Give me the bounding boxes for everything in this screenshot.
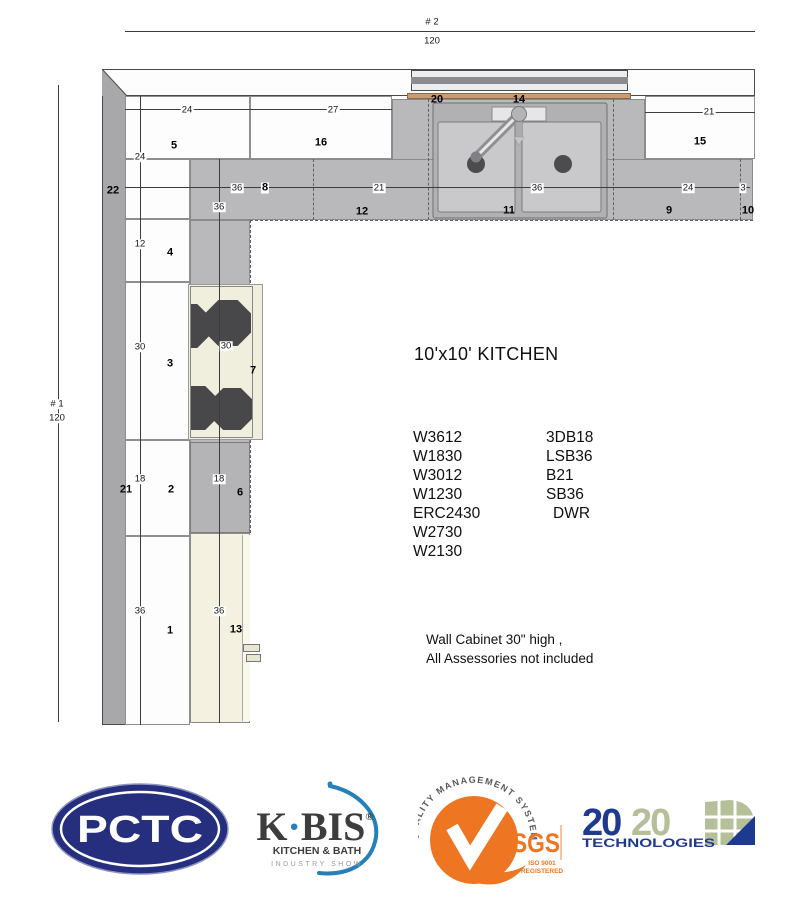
dim-label: 36 [213, 606, 226, 616]
note-line-1: Wall Cabinet 30" high , [426, 630, 593, 649]
cabinet-code: W1230 [413, 485, 480, 504]
overall-height-dim-id: # 1 [48, 399, 65, 409]
cabinet-boundary-dashed-1 [313, 159, 314, 220]
wall-cabinet-5-side [125, 159, 190, 219]
cabinet-list-col2: 3DB18LSB36B21SB36DWR [546, 428, 593, 523]
kbis-tagline: INDUSTRY SHOW [271, 861, 363, 868]
dim-label: 36 [531, 183, 544, 193]
pctc-logo: PCTC [50, 783, 230, 875]
kbis-logo: K·BIS® KITCHEN & BATH INDUSTRY SHOW [255, 775, 403, 885]
page-title: 10'x10' KITCHEN [414, 344, 558, 365]
base-left-dim-line [219, 159, 220, 723]
dim-label: 21 [703, 107, 716, 117]
cabinet-code: W1830 [413, 447, 480, 466]
dim-label: 24 [134, 152, 147, 162]
sgs-name: SGS [512, 828, 560, 858]
dim-label: 36 [231, 183, 244, 193]
dim-label: 30 [220, 341, 233, 351]
cabinet-boundary-dashed-3 [613, 99, 614, 220]
pctc-logo-text: PCTC [77, 809, 203, 851]
range-cooktop [190, 286, 253, 438]
wall-cabinet-3 [125, 282, 190, 440]
kitchen-plan-page: # 2 120 # 1 120 [0, 0, 800, 914]
cabinet-code: W3012 [413, 466, 480, 485]
overall-width-dim-line [125, 31, 755, 32]
sgs-registered: REGISTERED [521, 868, 564, 875]
item-number: 5 [171, 141, 177, 152]
2020-technologies-logo: 20 20 TECHNOLOGIES [580, 790, 758, 852]
cabinet-code: W2730 [413, 523, 480, 542]
item-number: 1 [167, 626, 173, 637]
item-number: 21 [120, 485, 132, 496]
item-number: 9 [666, 206, 672, 217]
dim-label: 24 [181, 105, 194, 115]
dim-label: 18 [134, 474, 147, 484]
cabinet-list-col1: W3612W1830W3012W1230ERC2430W2730W2130 [413, 428, 480, 561]
cabinet-code: 3DB18 [546, 428, 593, 447]
item-number: 12 [356, 207, 368, 218]
wallcab-top-dim-line [125, 109, 392, 110]
cabinet-code: LSB36 [546, 447, 593, 466]
note-text: Wall Cabinet 30" high , All Assessories … [426, 630, 593, 668]
item-number: 15 [694, 137, 706, 148]
item-number: 11 [503, 206, 515, 217]
item-number: 13 [230, 625, 242, 636]
item-number: 22 [107, 186, 119, 197]
burner-icon [205, 300, 251, 346]
overall-width-dim-value: 120 [422, 36, 442, 46]
dim-label: 36 [134, 606, 147, 616]
wallcab-left-dim-line [140, 96, 141, 725]
item-number: 2 [168, 485, 174, 496]
cabinet-code: B21 [546, 466, 593, 485]
wall-cabinet-2 [125, 440, 190, 536]
dim-label: 12 [134, 239, 147, 249]
item-number: 7 [250, 366, 256, 377]
cabinet-code: SB36 [546, 485, 593, 504]
refrigerator-door-edge [242, 535, 250, 721]
drain-icon [554, 155, 572, 173]
kbis-logo-text: K·BIS® [256, 804, 373, 849]
item-number: 3 [167, 359, 173, 370]
cabinet-code: W2130 [413, 542, 480, 561]
item-number: 10 [742, 206, 754, 217]
wall-cabinet-4 [125, 219, 190, 282]
2020-name: TECHNOLOGIES [582, 836, 715, 850]
sink-icon [430, 100, 610, 222]
wall-cabinet-15 [645, 96, 755, 159]
fridge-handle-icon [243, 644, 260, 652]
item-number: 16 [315, 138, 327, 149]
item-number: 20 [431, 95, 443, 106]
cabinet-code: ERC2430 [413, 504, 480, 523]
dim-label: 21 [373, 183, 386, 193]
dim-label: 30 [134, 342, 147, 352]
dim-label: 3 [739, 183, 746, 193]
cabinet-code: W3612 [413, 428, 480, 447]
overall-width-dim-id: # 2 [423, 17, 440, 27]
fridge-handle-icon [246, 654, 261, 662]
dim-label: 27 [327, 105, 340, 115]
cabinet-boundary-dashed-2 [428, 99, 429, 220]
wallcab15-dim-line [645, 112, 755, 113]
dim-label: 18 [213, 474, 226, 484]
dim-label: 24 [682, 183, 695, 193]
wall-cabinet-16 [250, 96, 392, 159]
wall-corner-miter [102, 69, 128, 97]
note-line-2: All Assessories not included [426, 649, 593, 668]
sgs-logo: QUALITY MANAGEMENT SYSTEM SGS ISO 9001 R… [418, 763, 578, 913]
cabinet-code: DWR [546, 504, 593, 523]
faucet-base [512, 107, 527, 122]
item-number: 8 [261, 183, 269, 194]
wall-cabinet-1 [125, 536, 190, 725]
item-number: 4 [167, 248, 173, 259]
item-number: 14 [513, 95, 525, 106]
dim-label: 36 [213, 202, 226, 212]
kbis-subtitle: KITCHEN & BATH [273, 845, 361, 857]
item-number: 6 [237, 488, 243, 499]
window-glass-band [411, 77, 628, 84]
sgs-iso: ISO 9001 [528, 860, 556, 867]
overall-height-dim-value: 120 [47, 413, 67, 423]
left-wall [102, 69, 127, 725]
burner-icon [211, 388, 253, 430]
